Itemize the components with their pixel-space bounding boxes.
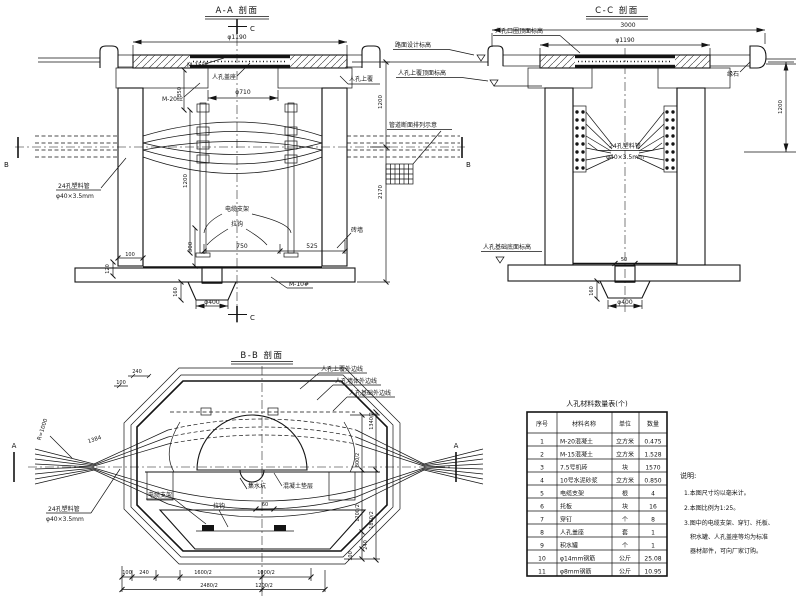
dim-60: 60 [262, 502, 268, 508]
note-line: 器材部件，可向厂家订购。 [690, 547, 762, 555]
callout-wall: 人孔墙体外边线 [335, 377, 377, 385]
dim-525: 525 [306, 243, 318, 250]
table-row: 37.5号机砖块1570 [540, 464, 661, 472]
dim-160: 160 [173, 287, 179, 297]
base-slab [75, 268, 355, 282]
cell: 0.475 [644, 439, 661, 446]
table-row: 1M-20混凝土立方米0.475 [540, 438, 662, 446]
dim-top-100: 100 [116, 380, 126, 386]
label-sump: 集水坑 [248, 482, 266, 490]
section-aa: A-A 剖面 C C B B [4, 5, 488, 325]
label-m20: M-20砼 [162, 95, 183, 103]
dim-phi710: φ710 [235, 89, 251, 96]
dim-1200-left: 1200 [183, 174, 189, 188]
cell: 10 [538, 556, 546, 563]
label-slab-level: 人孔上覆顶面标高 [398, 69, 446, 77]
cell: 25.08 [644, 556, 661, 563]
notes-heading: 说明: [680, 471, 696, 480]
cell: 公斤 [619, 568, 631, 576]
cut-marker-b-right: B [466, 161, 471, 169]
bedding-band [160, 510, 365, 549]
callout-top-slab: 人孔上覆外边线 [321, 365, 363, 373]
cell: 0.850 [644, 478, 661, 485]
cell: φ8mm钢筋 [560, 568, 591, 576]
label-duct-2: φ40×3.5mm [606, 154, 644, 161]
cut-marker-a-right: A [454, 442, 459, 450]
manhole-drawing: A-A 剖面 C C B B [0, 0, 800, 600]
sump [188, 282, 236, 300]
elevation-flag-road [477, 55, 485, 61]
cell: 4 [540, 478, 544, 485]
collar-concrete [116, 68, 208, 88]
dim-r-1200: 1200/2 [355, 504, 361, 522]
cell: 10号水泥砂浆 [560, 477, 598, 485]
note-line: 3.图中的电缆支架、穿钉、托板、 [684, 519, 774, 527]
dim-2170: 2170 [378, 185, 384, 199]
dim-1384: 1384 [87, 435, 103, 445]
cell: 7 [540, 517, 544, 524]
label-rack: 电缆支架 [225, 205, 249, 213]
label-duct-grid: 管道断面排列示意 [389, 121, 437, 129]
cell: 托板 [560, 503, 572, 511]
label-duct-1: 24孔塑料管 [58, 182, 90, 190]
section-aa-title: A-A 剖面 [215, 5, 258, 16]
cell: 16 [649, 504, 657, 511]
dim-r-800: 800/2 [355, 453, 361, 467]
dim-3000: 3000 [620, 22, 635, 29]
cell: 块 [622, 503, 628, 511]
cell: 个 [622, 517, 628, 524]
cables [35, 419, 483, 517]
rack-foot [274, 525, 286, 531]
table-title: 人孔材料数量表(个) [566, 399, 628, 408]
cell: 立方米 [616, 477, 634, 485]
brick-wall-right [677, 88, 705, 265]
cell: 6 [540, 504, 544, 511]
cell: 根 [622, 490, 628, 498]
dim-b1-100: 100 [122, 570, 132, 576]
label-m10: M-10# [289, 281, 309, 288]
cell: 8 [540, 530, 544, 537]
cut-marker-a-left: A [12, 442, 17, 450]
dim-1200-right: 1200 [378, 95, 384, 109]
cell: 电缆支架 [560, 490, 584, 498]
cell: 立方米 [616, 438, 634, 446]
rack-foot [202, 525, 214, 531]
label-duct-1: 24孔塑料管 [609, 142, 641, 150]
dim-50: 50 [621, 257, 627, 263]
label-bedding: 混凝土垫层 [283, 482, 313, 490]
dim-r-1860: 1860/2 [369, 511, 375, 529]
brick-wall-left [545, 88, 573, 265]
cut-marker-c-bottom: C [250, 314, 255, 322]
cell: 2 [540, 452, 544, 459]
cell: 人孔盖座 [560, 529, 584, 537]
curb-right [362, 46, 380, 68]
brick-wall-right [322, 88, 347, 266]
label-brick-wall: 砖墙 [351, 226, 363, 234]
section-bb: B-B 剖面 A A 人孔上覆外边线 人孔墙体外边线 人孔基础外边线 R=100… [12, 350, 483, 596]
cell: 10.95 [644, 569, 661, 576]
dim-r-1340: 1340/2 [369, 412, 375, 430]
label-cover-seat: 人孔盖座 [212, 73, 236, 81]
col-header-name: 材料名称 [572, 420, 596, 428]
cover-ring [575, 55, 675, 58]
col-header-unit: 单位 [619, 420, 631, 428]
label-base-level: 人孔基础底面标高 [483, 243, 531, 251]
table-row: 2M-15混凝土立方米1.528 [540, 451, 662, 459]
cell: 块 [622, 464, 628, 472]
duct-grid-symbol [386, 131, 441, 184]
note-line: 2.本图比例为1:25。 [684, 504, 739, 512]
cover-ring [190, 55, 290, 58]
dim-120: 120 [105, 264, 111, 274]
curb-left [100, 46, 118, 68]
collar-concrete [528, 68, 592, 88]
dim-b2-1200: 1200/2 [255, 583, 273, 589]
cell: 1.528 [644, 452, 661, 459]
cell: 积水罐 [560, 542, 578, 550]
note-line: 1.本图尺寸均以毫米计。 [684, 489, 750, 497]
dim-1200: 1200 [778, 100, 784, 114]
dim-b1-1600: 1600/2 [194, 570, 212, 576]
dim-300: 300 [188, 241, 194, 252]
callout-base: 人孔基础外边线 [349, 389, 391, 397]
table-row: 6托板块16 [540, 503, 657, 511]
label-road-level: 路面设计标高 [395, 41, 431, 49]
label-curb: 缘石 [727, 70, 739, 78]
cell: 5 [540, 491, 544, 498]
cell: 7.5号机砖 [560, 464, 588, 472]
label-duct-1: 24孔塑料管 [48, 505, 80, 513]
label-ring-level: 人孔口圈顶面标高 [495, 27, 543, 35]
cell: 1 [540, 439, 544, 446]
cell: 立方米 [616, 451, 634, 459]
dim-phi400: φ400 [617, 299, 633, 306]
cell: 11 [538, 569, 546, 576]
cell: 公斤 [619, 555, 631, 563]
dim-phi1190: φ1190 [615, 37, 634, 44]
curb-right [750, 46, 766, 68]
cell: 1570 [645, 465, 660, 472]
label-duct-2: φ40×3.5mm [46, 516, 84, 523]
cell: 1 [651, 543, 655, 550]
cell: 9 [540, 543, 544, 550]
notes: 说明: 1.本图尺寸均以毫米计。 2.本图比例为1:25。 3.图中的电缆支架、… [680, 471, 774, 555]
brick-wall-left [118, 88, 143, 266]
base-slab [508, 265, 740, 281]
label-hook: 拉钩 [231, 220, 243, 228]
dim-phi1190: φ1190 [227, 34, 246, 41]
elevation-flag-base [496, 257, 504, 263]
elevation-flag-slab [490, 80, 498, 86]
cell: M-20混凝土 [560, 438, 593, 446]
materials-table: 人孔材料数量表(个) 序号 材料名称 单位 数量 1M-20混凝土立方米0.47… [527, 399, 667, 576]
cell: φ14mm钢筋 [560, 555, 595, 563]
section-bb-title: B-B 剖面 [240, 350, 283, 361]
label-top-slab: 人孔上覆 [349, 75, 373, 83]
col-header-no: 序号 [536, 420, 548, 428]
section-cc-title: C-C 剖面 [595, 5, 639, 16]
table-row: 410号水泥砂浆立方米0.850 [540, 477, 662, 485]
dim-b1-240: 240 [139, 570, 149, 576]
dim-160: 160 [589, 286, 595, 296]
cell: 穿钉 [560, 516, 572, 524]
dim-r-100: 100 [348, 551, 354, 561]
label-m15: M-15砼 [187, 61, 208, 69]
cell: 套 [622, 529, 628, 537]
dim-b1-1000: 1000/2 [257, 570, 275, 576]
cell: 3 [540, 465, 544, 472]
col-header-qty: 数量 [647, 420, 659, 428]
dim-phi400: φ400 [204, 299, 220, 306]
cell: M-15混凝土 [560, 451, 593, 459]
cell: 8 [651, 517, 655, 524]
curb-left [488, 46, 503, 66]
sump-dome [197, 415, 307, 470]
dim-top-240: 240 [132, 369, 142, 375]
dim-750: 750 [236, 243, 248, 250]
dim-100: 100 [125, 252, 135, 258]
label-rack: 电缆支架 [148, 491, 172, 499]
section-cc: C-C 剖面 路面设计标高 人孔口圈顶面标高 人孔上覆顶面标高 缘石 [393, 5, 796, 315]
cut-marker-b-left: B [4, 161, 9, 169]
dim-r-240: 240 [363, 540, 369, 550]
note-line: 积水罐、人孔盖座等均为标准 [690, 533, 768, 541]
label-duct-2: φ40×3.5mm [56, 193, 94, 200]
label-hook: 拉钩 [213, 502, 225, 510]
cell: 4 [651, 491, 655, 498]
cut-marker-c-top: C [250, 25, 255, 33]
label-r1000: R=1000 [37, 418, 50, 442]
cell: 1 [651, 530, 655, 537]
dim-b2-2480: 2480/2 [200, 583, 218, 589]
cell: 个 [622, 543, 628, 550]
drawing-sheet: A-A 剖面 C C B B [0, 0, 800, 600]
